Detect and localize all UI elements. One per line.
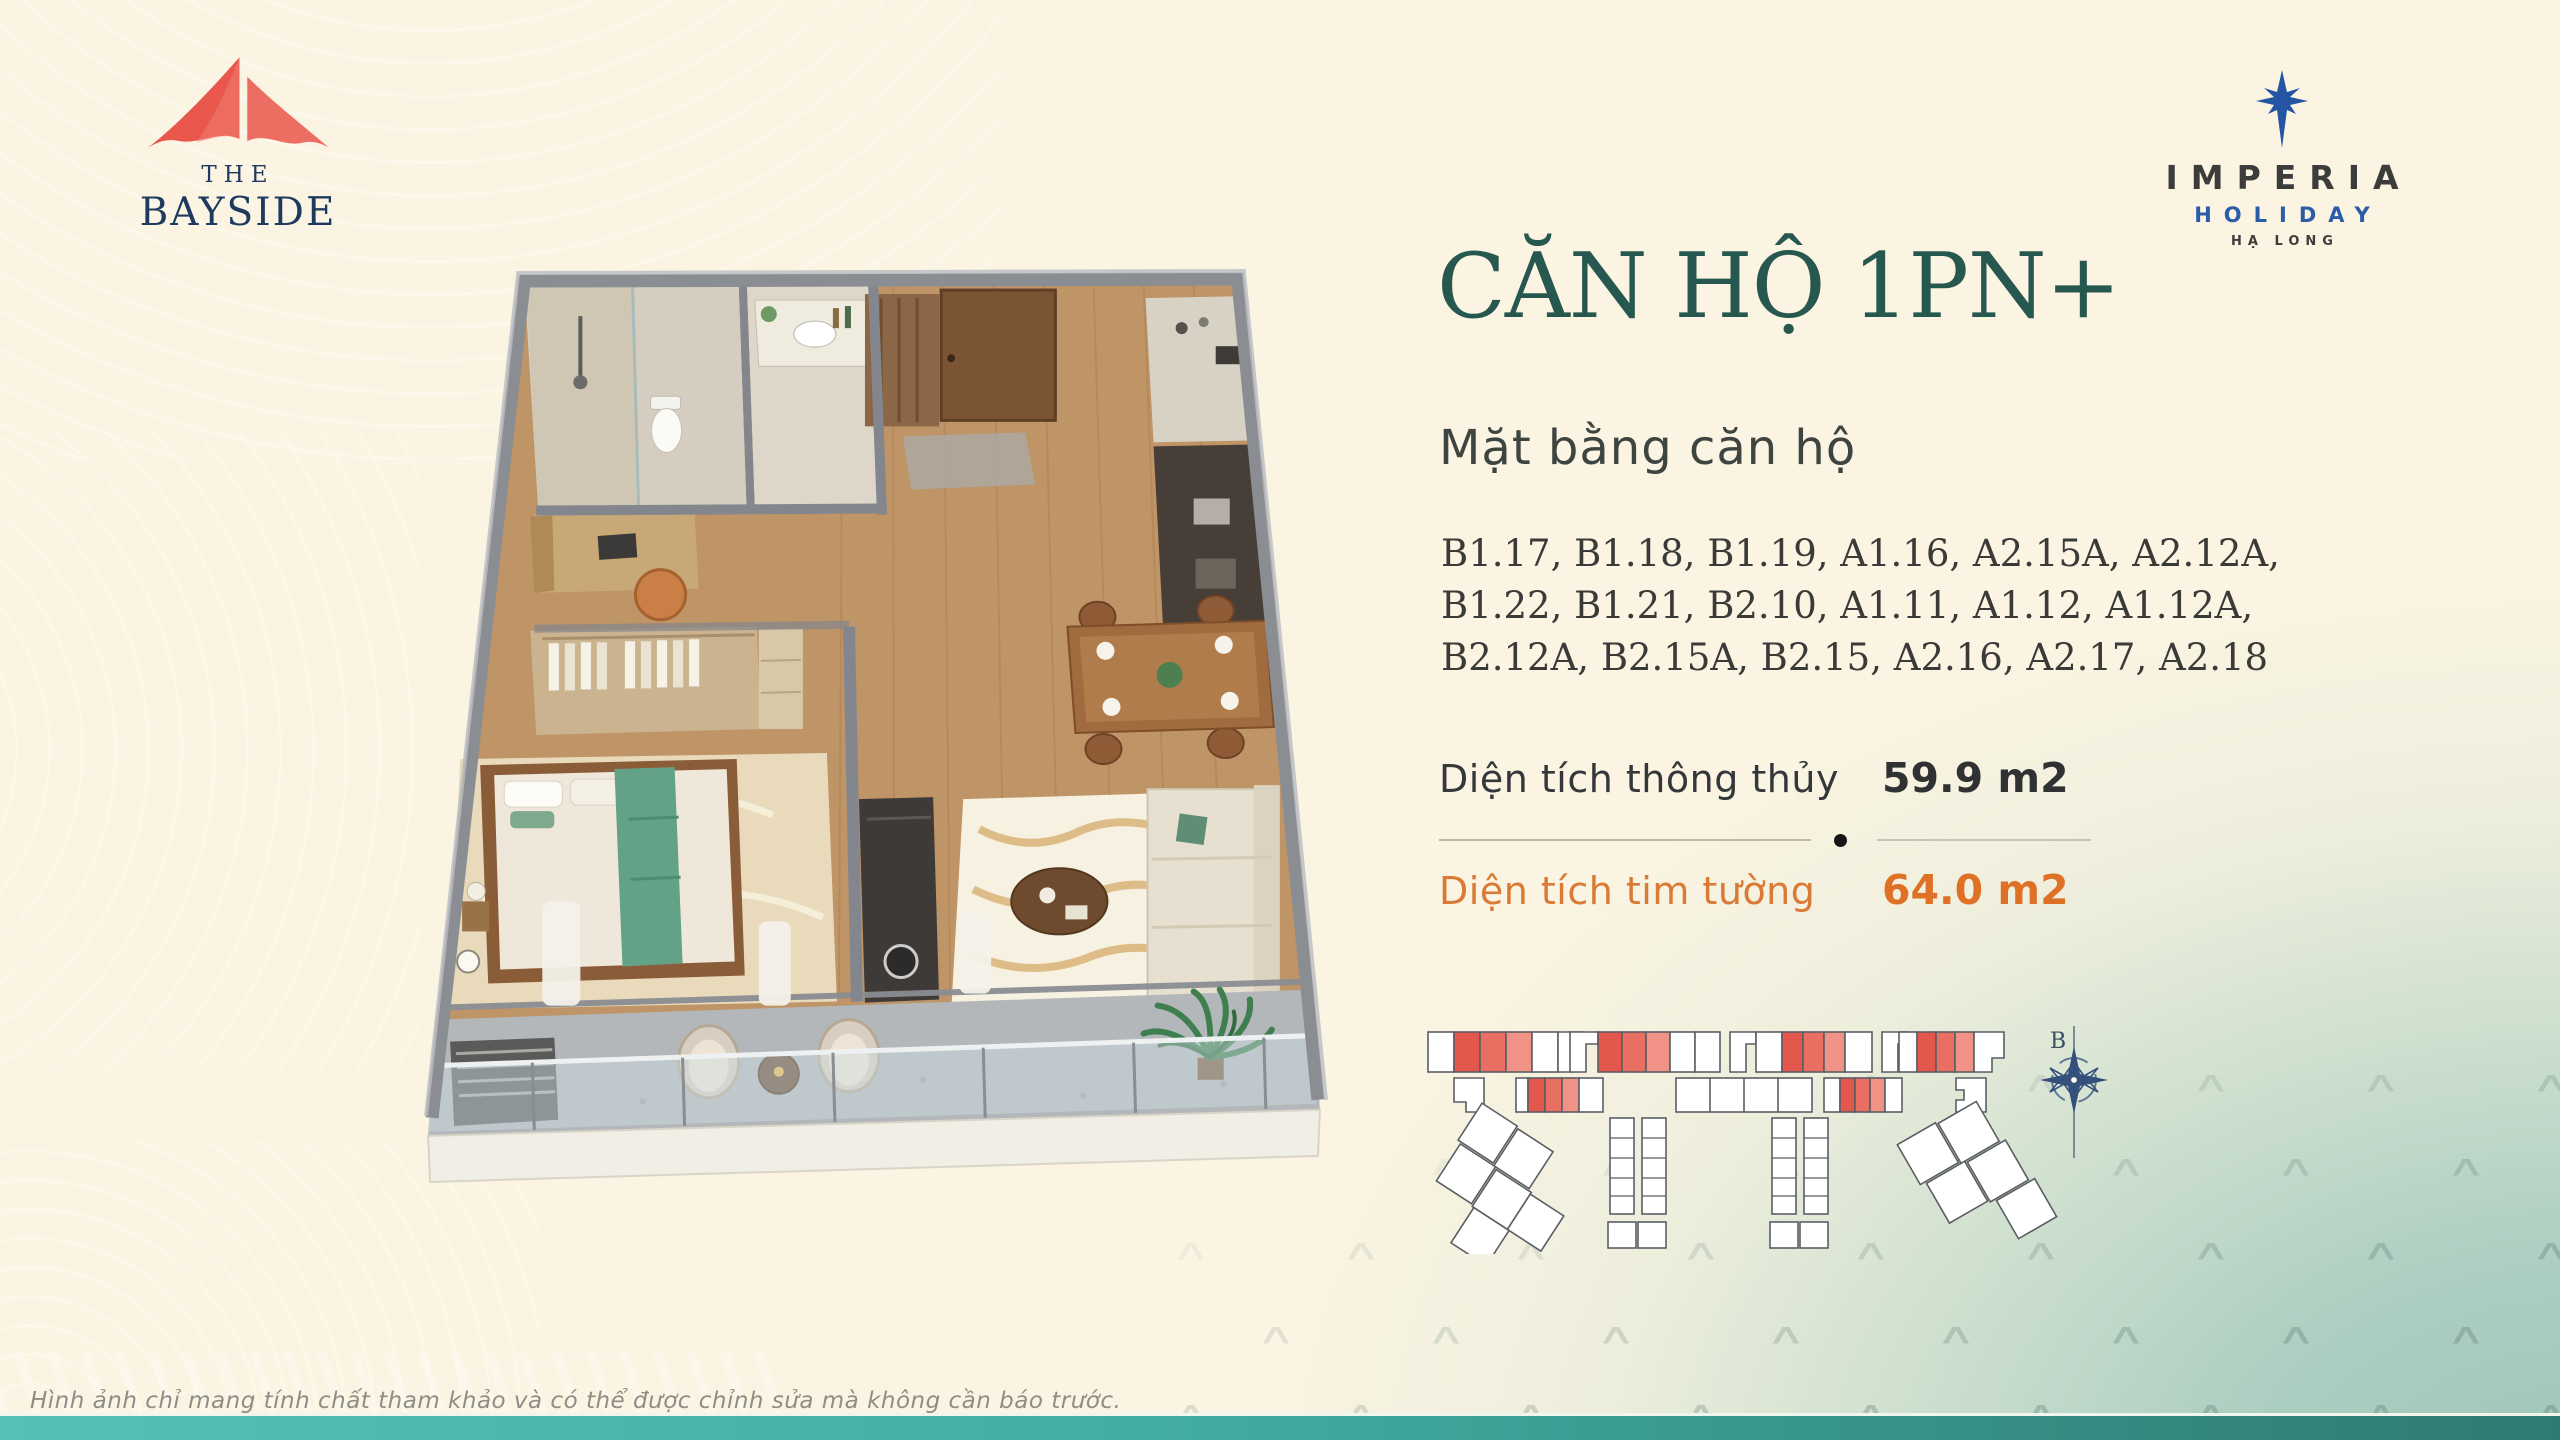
area-divider <box>1439 834 2139 846</box>
compass-icon: B <box>2040 1026 2108 1158</box>
gross-area-row: Diện tích tim tường 64.0 m2 <box>1439 866 2139 924</box>
area-table: Diện tích thông thủy 59.9 m2 Diện tích t… <box>1439 754 2139 924</box>
divider-dot <box>1834 834 1847 847</box>
unit-codes-line-1: B1.17, B1.18, B1.19, A1.16, A2.15A, A2.1… <box>1441 528 2280 580</box>
imperia-name: IMPERIA <box>2152 158 2412 197</box>
page-title: CĂN HỘ 1PN+ <box>1437 238 2197 335</box>
floor-plan-render <box>402 258 1354 1210</box>
compass-north-label: B <box>2050 1029 2066 1054</box>
gross-area-label: Diện tích tim tường <box>1439 869 1882 913</box>
bayside-logo: THE BAYSIDE <box>128 52 348 235</box>
divider-line-left <box>1439 839 1811 841</box>
footer-bar <box>0 1416 2560 1440</box>
bayside-the: THE <box>128 162 348 188</box>
bayside-logo-icon <box>146 52 331 152</box>
unit-code-list: B1.17, B1.18, B1.19, A1.16, A2.15A, A2.1… <box>1441 528 2280 683</box>
unit-codes-line-3: B2.12A, B2.15A, B2.15, A2.16, A2.17, A2.… <box>1441 632 2280 684</box>
imperia-logo: IMPERIA HOLIDAY HẠ LONG <box>2152 70 2412 249</box>
net-area-label: Diện tích thông thủy <box>1439 757 1882 801</box>
net-area-value: 59.9 m2 <box>1882 754 2069 802</box>
contour-arcs-left <box>0 430 420 1070</box>
gross-area-value: 64.0 m2 <box>1882 866 2069 914</box>
bayside-name: BAYSIDE <box>128 190 348 235</box>
site-key-plan: B <box>1420 1018 2136 1254</box>
divider-line-right <box>1877 839 2091 841</box>
disclaimer-text: Hình ảnh chỉ mang tính chất tham khảo và… <box>30 1388 1121 1414</box>
brochure-page: ∧∧∧∧∧∧∧∧∧∧∧∧∧∧∧∧∧∧∧∧∧∧∧∧∧∧∧∧∧∧∧∧∧∧∧∧∧∧ T… <box>0 0 2560 1440</box>
imperia-star-icon <box>2250 70 2314 148</box>
imperia-holiday: HOLIDAY <box>2152 203 2412 227</box>
net-area-row: Diện tích thông thủy 59.9 m2 <box>1439 754 2139 812</box>
page-subtitle: Mặt bằng căn hộ <box>1439 420 1856 476</box>
unit-codes-line-2: B1.22, B1.21, B2.10, A1.11, A1.12, A1.12… <box>1441 580 2280 632</box>
